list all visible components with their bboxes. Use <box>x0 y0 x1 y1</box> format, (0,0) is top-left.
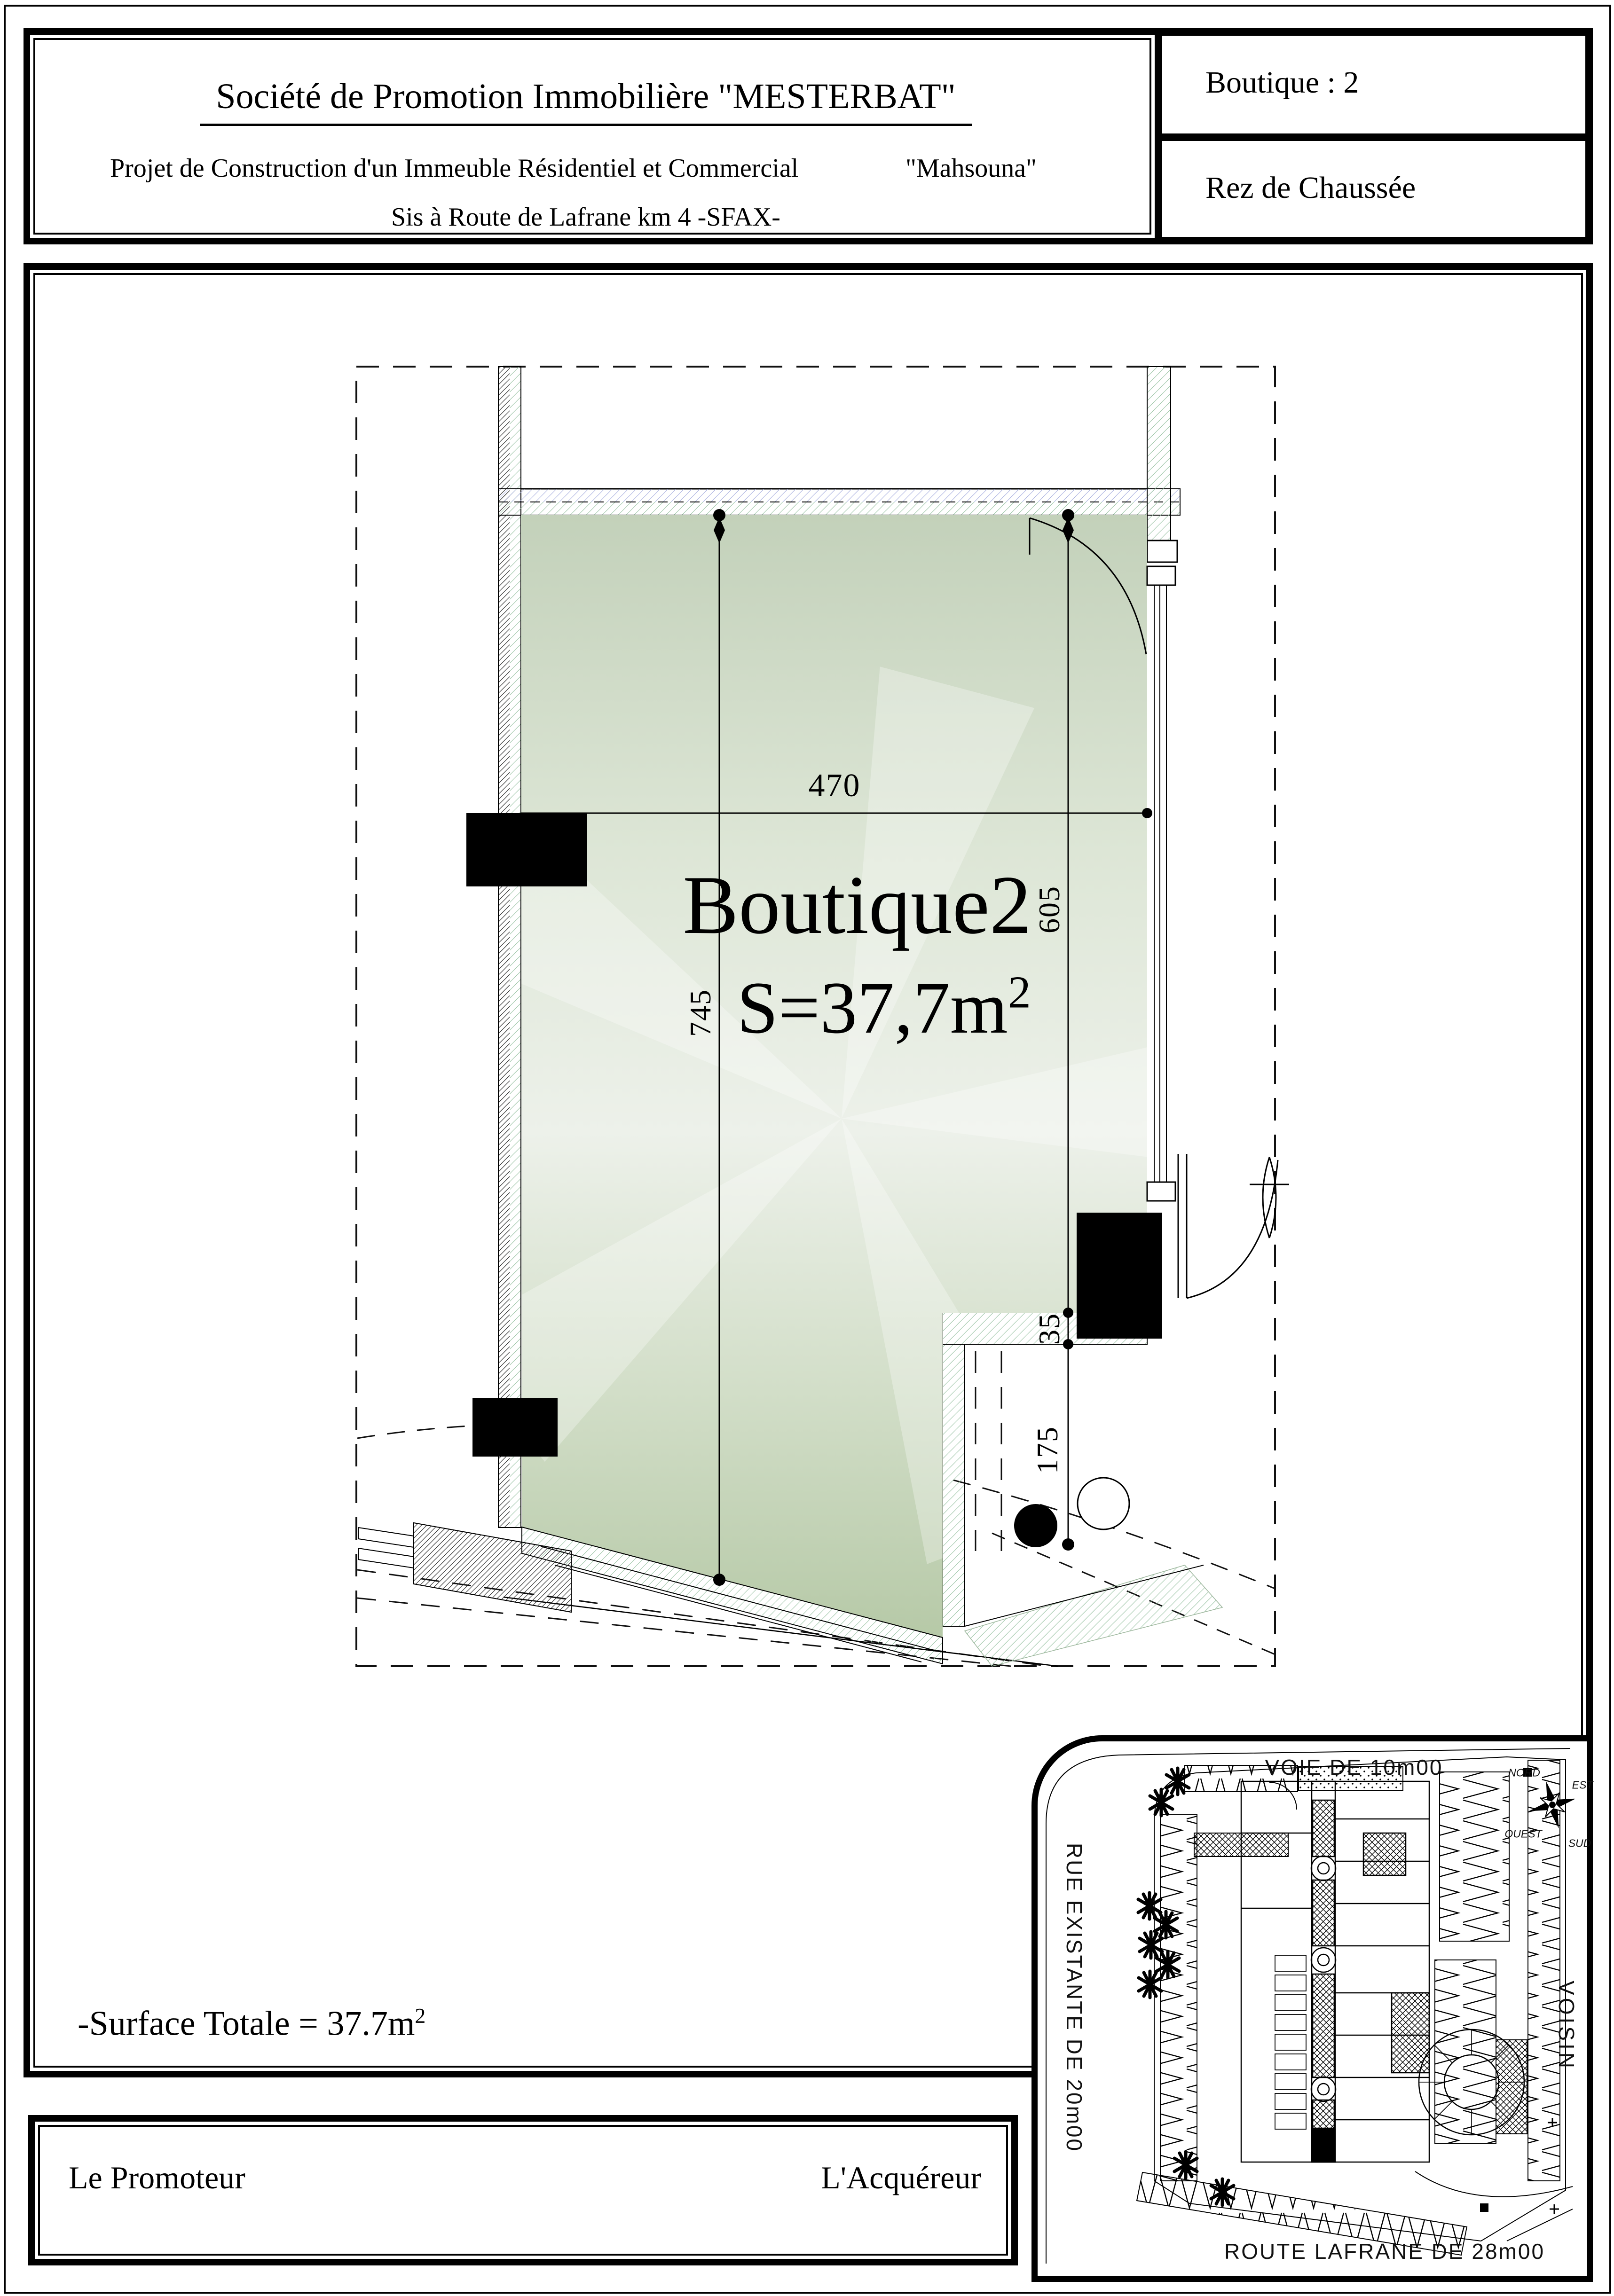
surface-note: -Surface Totale = 37.7m2 <box>78 2003 425 2044</box>
exterior-door <box>1178 1154 1289 1298</box>
drawing-sheet: Société de Promotion Immobilière "MESTER… <box>0 0 1614 2296</box>
room-area-sup: 2 <box>1008 967 1031 1018</box>
dim-right-label: 605 <box>1032 885 1067 933</box>
compass-east-label: EST <box>1572 1779 1593 1792</box>
dim-wall-label: 35 <box>1032 1313 1067 1345</box>
site-road-left-label: RUE EXISTANTE DE 20m00 <box>1062 1843 1087 2152</box>
signature-box: Le Promoteur L'Acquéreur <box>28 2115 1018 2265</box>
site-neighbor-label: VOISIN <box>1554 1981 1579 2071</box>
site-plan-box <box>1031 1735 1593 2282</box>
dim-left-label: 745 <box>683 989 718 1037</box>
surface-note-base: -Surface Totale = 37.7m <box>78 2005 415 2043</box>
room-area-base: S=37,7m <box>737 967 1008 1049</box>
site-plan-drawing <box>1038 1741 1575 2264</box>
promoter-label: Le Promoteur <box>69 2159 245 2196</box>
compass-west-label: OUEST <box>1504 1828 1542 1841</box>
right-glazing <box>1147 566 1175 1201</box>
buyer-label: L'Acquéreur <box>821 2159 981 2196</box>
upper-room <box>521 368 1147 489</box>
column-open-circle <box>1078 1478 1129 1529</box>
room-area-label: S=37,7m2 <box>737 965 1031 1051</box>
compass-north-label: NORD <box>1508 1767 1540 1779</box>
compass-south-label: SUD <box>1568 1837 1591 1850</box>
dim-width-label: 470 <box>809 767 861 805</box>
surface-note-sup: 2 <box>415 2004 425 2028</box>
dim-front-label: 175 <box>1030 1426 1065 1474</box>
site-road-top-label: VOIE DE 10m00 <box>1265 1755 1443 1780</box>
room-name-label: Boutique2 <box>683 856 1031 953</box>
site-road-bottom-label: ROUTE LAFRANE DE 28m00 <box>1224 2239 1545 2264</box>
